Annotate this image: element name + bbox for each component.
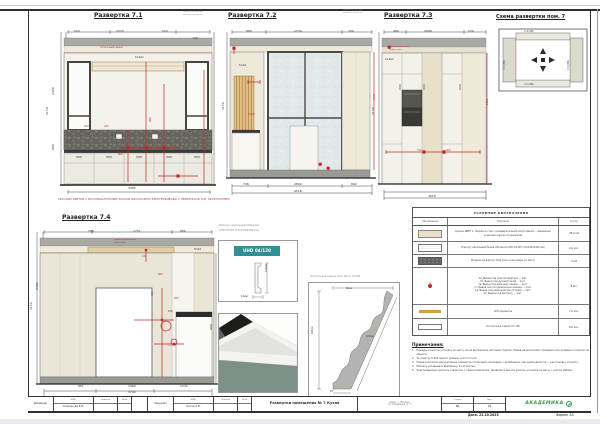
tb-spacer-cell [132, 397, 148, 411]
tb-stage-value: РД [442, 404, 473, 411]
company-logo-text: АКАДЕМИКА [525, 401, 563, 406]
title-elevation-71: Развертка 7.1 [94, 13, 142, 19]
frame-left [28, 9, 29, 413]
plinth-caption-line1: Плинтус напольный Ultrawood [219, 224, 259, 227]
paint-swatch [418, 230, 442, 238]
cornice-caption: Потолочный карниз Orac Decor CX106 [310, 275, 360, 278]
frame-right-inner [590, 9, 591, 413]
frame-bottom [28, 412, 591, 413]
notes-title: Примечания: [412, 343, 590, 347]
tb-sign-header-2: Подпись [214, 397, 237, 404]
elevation-7-1-drawing [58, 24, 218, 200]
tb-client-sign-cell: Подпись [214, 397, 238, 411]
cornice-profile-box [308, 282, 400, 398]
socket-swatch [428, 284, 433, 289]
tb-stage-header: Стадия [442, 397, 473, 404]
tb-client-date-cell: Дата [238, 397, 252, 411]
title-elevation-74: Развертка 7.4 [62, 215, 110, 221]
tb-logo-cell: АКАДЕМИКА [506, 397, 591, 411]
title-scheme: Схема развертки пом. 7 [496, 15, 565, 20]
legend-desc: LED подсветка [447, 305, 559, 318]
tb-address-line2: ул. Академика, д. 7 [388, 404, 411, 406]
scheme-label-left: 7.1 (2В) [504, 60, 506, 70]
tb-designer-name: Капранова Е.В. [54, 404, 93, 411]
scheme-plan: 7.4 (2В) 7.2 (2В) 7.1 (2В) 7.3 (2В) [498, 28, 588, 96]
notes-list: 1.Размеры и высоты уточнять по месту пос… [412, 349, 590, 372]
scheme-label-bottom: 7.2 (2В) [524, 84, 534, 86]
page-edge [0, 419, 600, 424]
tb-sheet-title: Развертки помещения № 7 Кухня [252, 397, 357, 411]
tb-designer-date-cell: Дата [118, 397, 132, 411]
plinth-caption-line2: UHD 04/120 (14х120х2440 мм) [219, 229, 259, 232]
legend-row: Краска ЦВЕТ 1: Покраска стен с предварит… [413, 226, 589, 242]
tb-client-label: Заказчик [148, 397, 173, 411]
legend-rows: Краска ЦВЕТ 1: Покраска стен с предварит… [413, 226, 589, 335]
legend-row: LED подсветка7,0 м.п. [413, 305, 589, 319]
legend-col-desc: Описание [447, 218, 559, 225]
tb-fio-header: ФИО [54, 397, 93, 404]
tb-designer-date [118, 404, 131, 411]
tb-designer-label: Дизайнер [28, 397, 53, 411]
elevation-7-2-drawing [224, 24, 378, 200]
tb-sheet-title-cell: Развертки помещения № 7 Кухня [252, 397, 358, 411]
note-item: 2.За отметку 0,000 принят уровень чистог… [412, 357, 590, 360]
legend-desc: Плинтус напольный белый Ultrawood UHD 04… [447, 242, 559, 254]
tb-date-header-2: Дата [238, 397, 251, 404]
note-item: 3.Перед монтажом декоративных элементов … [412, 361, 590, 364]
tb-client-label-cell: Заказчик [148, 397, 174, 411]
tb-sign-header: Подпись [94, 397, 117, 404]
dim-label: 3150 [30, 302, 33, 310]
legend-qty: 7,0 м.п. [559, 305, 589, 318]
tb-designer-name-cell: ФИО Капранова Е.В. [54, 397, 94, 411]
frame-top [0, 9, 600, 11]
legend-col-symbol: Обозначение [413, 218, 447, 225]
legend-row: Мозаика на фартук. Вид узла и раскладка … [413, 255, 589, 268]
led-swatch [419, 310, 441, 313]
legend-row: Плинтус напольный белый Ultrawood UHD 04… [413, 242, 589, 255]
legend-qty: 8 шт. [559, 268, 589, 304]
note-item: 5.Электровыводы смотреть совместно с пла… [412, 369, 590, 372]
company-logo-icon [566, 401, 572, 407]
drawing-sheet: Развертка 7.1 Развертка 7.2 Развертка 7.… [0, 0, 600, 424]
legend-row: 1а. Вывод под розетки фартука — 3шт. 1б.… [413, 268, 589, 305]
note-item: 4.Мозаику укладывать вразбежку, в 1/2 пл… [412, 365, 590, 368]
tb-list-value: 28 [474, 404, 505, 411]
mosaic-swatch [418, 257, 442, 265]
company-logo: АКАДЕМИКА [525, 401, 571, 407]
frame-right-outer [597, 9, 598, 413]
legend-qty: 8,0 м.п. [559, 319, 589, 335]
elevation-7-3-drawing [376, 24, 494, 208]
tb-list-cell: Лист 28 [474, 397, 506, 411]
tb-client-date [238, 404, 251, 411]
tb-designer-label-cell: Дизайнер [28, 397, 54, 411]
legend-desc: Краска ЦВЕТ 1: Покраска стен с предварит… [447, 226, 559, 241]
cornice-swatch [418, 324, 442, 330]
dim-label: монтаж по месту [183, 14, 202, 16]
tb-client-sign [214, 404, 237, 411]
title-block: Дизайнер ФИО Капранова Е.В. Подпись Дата… [28, 396, 591, 412]
legend-row: Потолочный карниз CX 1068,0 м.п. [413, 319, 589, 335]
note-item: 1.Размеры и высоты уточнять по месту пос… [412, 349, 590, 356]
frame-outer-top [0, 5, 600, 6]
legend-title: УСЛОВНЫЕ ОБОЗНАЧЕНИЯ [413, 208, 589, 218]
scheme-label-right: 7.3 (2В) [568, 60, 570, 70]
legend-desc: Потолочный карниз CX 106 [447, 319, 559, 335]
cornice-photo-box [218, 313, 298, 393]
scheme-label-top: 7.4 (2В) [524, 31, 534, 33]
legend-col-qty: кол-во [559, 218, 589, 225]
legend-qty: 2 м2 [559, 255, 589, 267]
sheet-format: Формат А3 [556, 414, 574, 417]
dim-label: Ниша (см. деталь) [183, 11, 203, 13]
tb-client-name-cell: ФИО Котов А.В. [174, 397, 214, 411]
notes-block: Примечания: 1.Размеры и высоты уточнять … [412, 343, 590, 373]
legend-table: УСЛОВНЫЕ ОБОЗНАЧЕНИЯ Обозначение Описани… [412, 207, 590, 336]
legend-qty: 35,4 м2 [559, 226, 589, 241]
tb-date-header: Дата [118, 397, 131, 404]
plinth-model-chip: UHD 04/120 [234, 246, 280, 256]
dim-label: монтаж по месту [343, 12, 362, 14]
tb-designer-sign-cell: Подпись [94, 397, 118, 411]
elevation-7-4-drawing [34, 224, 220, 400]
tb-fio-header-2: ФИО [174, 397, 213, 404]
tb-list-header: Лист [474, 397, 505, 404]
tb-address-cell: Адрес: г. Москва, ул. Академика, д. 7 [358, 397, 442, 411]
dim-label: 2400 [52, 87, 55, 95]
dim-label: 900 [52, 144, 55, 150]
tb-client-name: Котов А.В. [174, 404, 213, 411]
plinth-swatch [418, 244, 442, 252]
title-elevation-72: Развертка 7.2 [228, 13, 276, 19]
title-elevation-73: Развертка 7.3 [384, 13, 432, 19]
tb-designer-sign [94, 404, 117, 411]
legend-desc: Мозаика на фартук. Вид узла и раскладка … [447, 255, 559, 267]
sheet-date: Дата: 22.10.2023 [468, 414, 499, 417]
legend-desc: 1а. Вывод под розетки фартука — 3шт. 1б.… [447, 268, 559, 304]
legend-header-row: Обозначение Описание кол-во [413, 218, 589, 226]
dim-label: 3150 [46, 107, 49, 115]
legend-qty: 4,2 м.п. [559, 242, 589, 254]
tb-stage-cell: Стадия РД [442, 397, 474, 411]
